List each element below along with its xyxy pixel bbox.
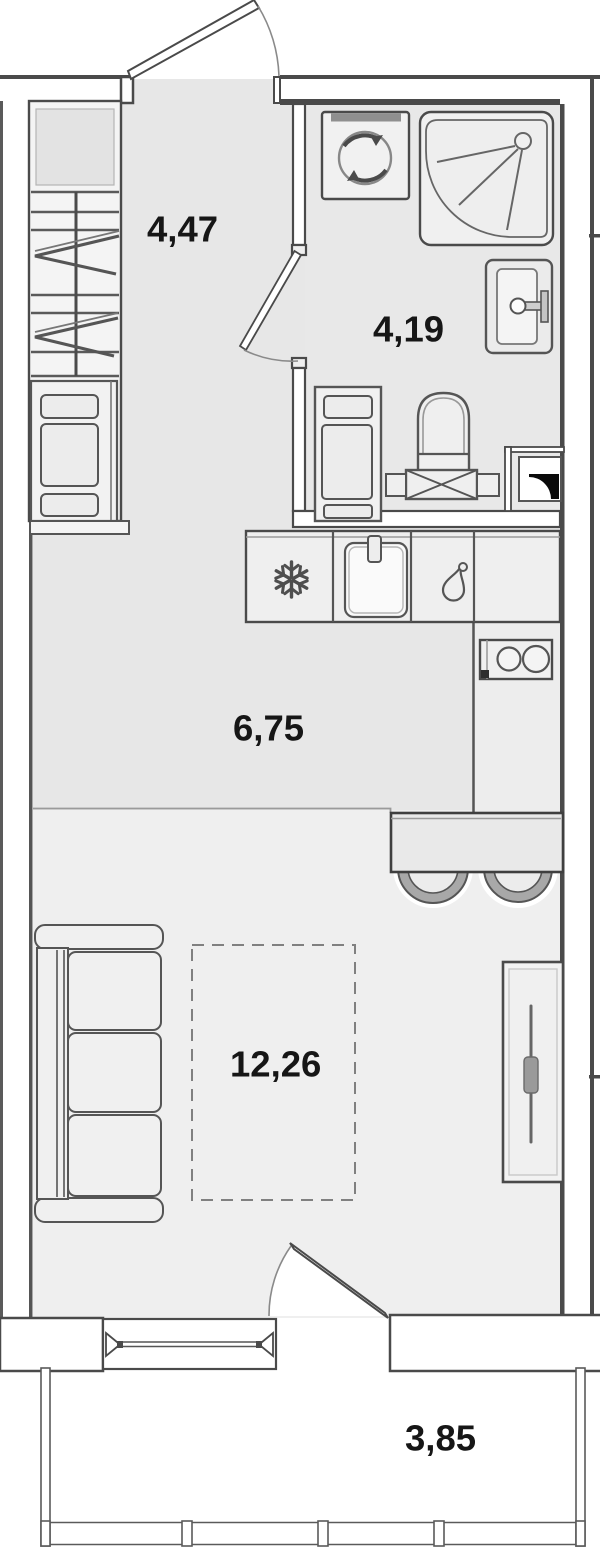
svg-text:12,26: 12,26	[230, 1044, 321, 1085]
svg-text:4,19: 4,19	[373, 309, 444, 350]
svg-text:3,85: 3,85	[405, 1418, 476, 1459]
svg-text:6,75: 6,75	[233, 708, 304, 749]
svg-text:4,47: 4,47	[147, 209, 218, 250]
